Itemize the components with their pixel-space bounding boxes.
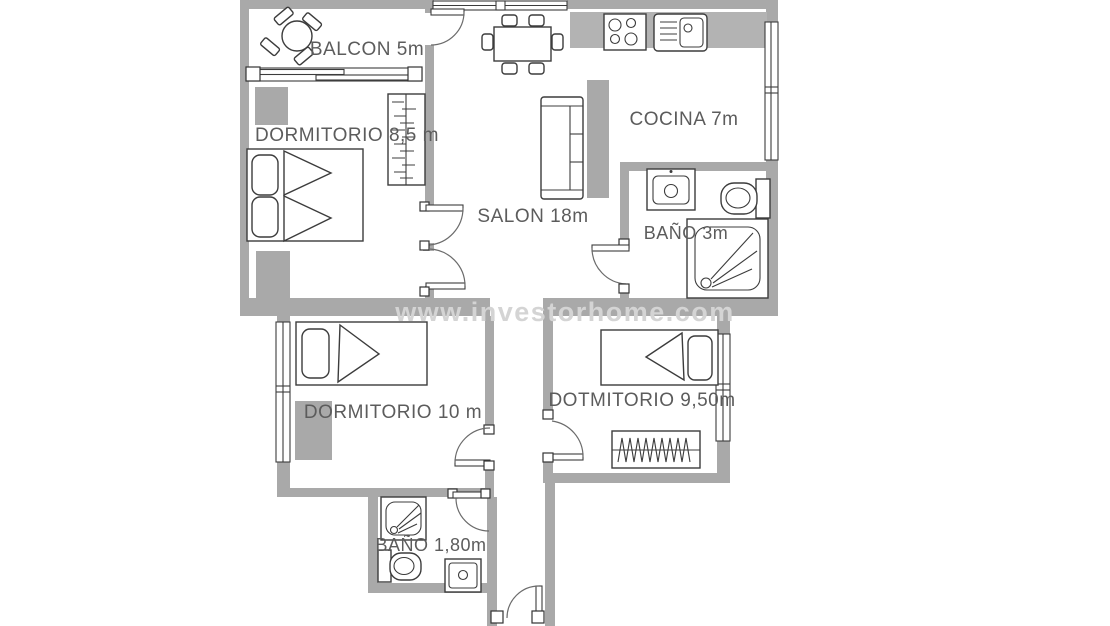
wall-segment (485, 316, 494, 428)
wall-segment (545, 483, 555, 626)
wall-segment (587, 80, 609, 198)
dining-table-icon (482, 15, 563, 74)
cabinet-block (255, 87, 288, 125)
room-label-dormitorio2: DORMITORIO 10 m (304, 402, 482, 423)
bedroom3-door (543, 410, 583, 462)
bathroom1-sink-icon (647, 169, 695, 210)
room-label-bano1: BAÑO 3m (644, 222, 729, 243)
room-label-bano2: BAÑO 1,80m (375, 534, 486, 555)
wall-segment (543, 473, 730, 483)
bedroom2-door (455, 425, 494, 470)
room-label-dormitorio3: DOTMITORIO 9,50m (548, 390, 735, 411)
wardrobe-icon (612, 431, 700, 468)
kitchen-sink-icon (654, 14, 707, 51)
wall-segment (567, 0, 778, 9)
floor-plan-canvas: www.investorhome.com (0, 0, 1110, 626)
bedroom1-door (420, 202, 463, 250)
room-label-dormitorio1: DORMITORIO 8,5 m (255, 125, 439, 146)
watermark-text: www.investorhome.com (394, 297, 735, 327)
floor-plan: www.investorhome.com (0, 0, 1110, 626)
entrance-door (491, 586, 544, 623)
single-bed-icon (296, 322, 427, 385)
wall-segment (487, 497, 497, 626)
room-label-balcon: BALCON 5m (310, 39, 424, 60)
double-bed-icon (247, 149, 363, 241)
kitchen-window (765, 22, 778, 160)
bathroom2-sink-icon (445, 559, 481, 592)
balcony-salon-door (431, 9, 464, 45)
wall-segment (240, 0, 433, 9)
bedroom2-window (276, 322, 290, 462)
bathroom2-shower-icon (381, 497, 426, 540)
hall-salon-door (420, 249, 465, 296)
room-label-salon: SALON 18m (477, 206, 588, 227)
room-label-cocina: COCINA 7m (629, 109, 738, 130)
wall-segment (620, 171, 629, 241)
single-bed-icon (601, 330, 718, 385)
sofa-icon (541, 97, 583, 199)
bathroom2-door (448, 489, 490, 531)
hob-icon (604, 14, 646, 50)
bathroom1-door (592, 239, 629, 293)
cabinet-block (256, 251, 290, 298)
balcony-window (246, 67, 422, 81)
bathroom1-toilet-icon (721, 179, 770, 218)
